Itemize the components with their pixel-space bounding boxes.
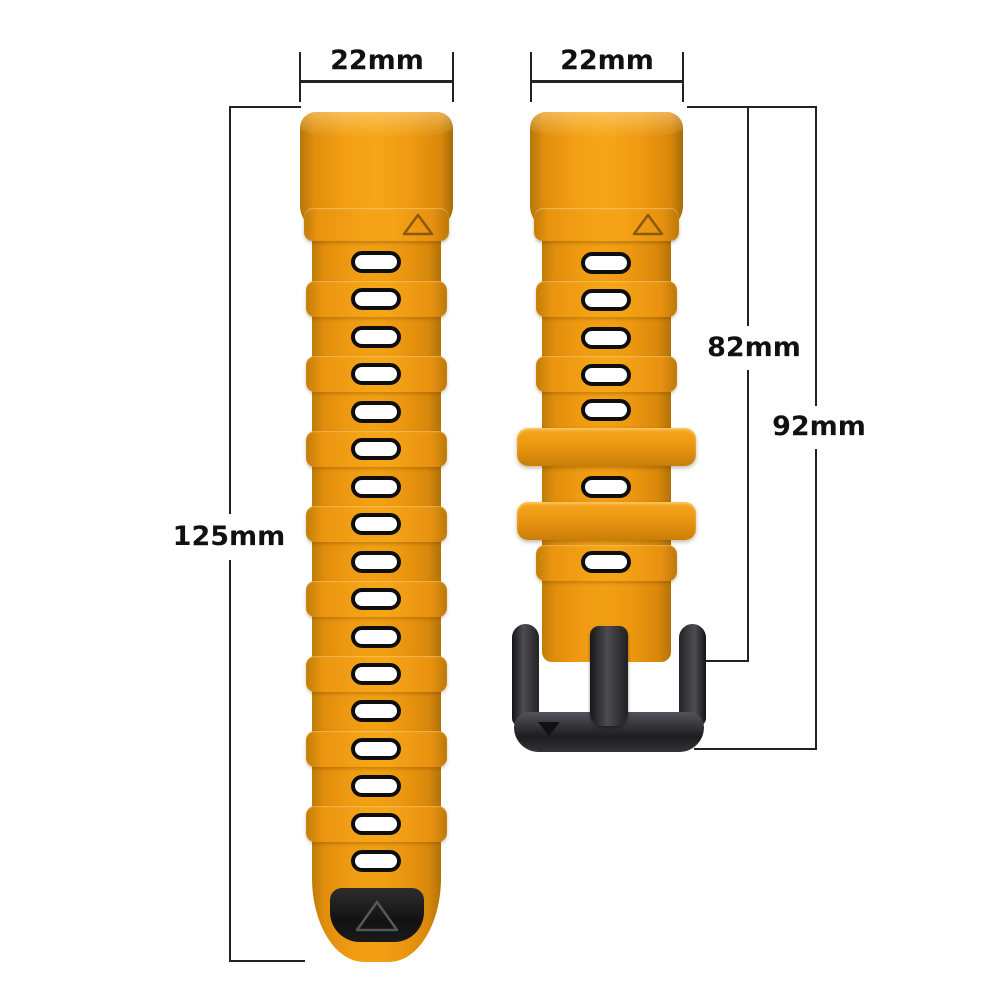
strap-hole bbox=[581, 399, 631, 421]
keeper-loop bbox=[517, 428, 696, 466]
strap-hole bbox=[351, 551, 401, 573]
dim-left-width-bar bbox=[299, 80, 454, 83]
strap-hole bbox=[581, 364, 631, 386]
dim-92-foot bbox=[694, 748, 817, 750]
tip-triangle-icon bbox=[354, 899, 400, 933]
alignment-triangle-icon bbox=[631, 212, 665, 237]
right-band bbox=[530, 112, 683, 662]
dim-length-line-lower bbox=[229, 560, 231, 962]
strap-hole bbox=[351, 663, 401, 685]
strap-hole bbox=[351, 813, 401, 835]
strap-hole bbox=[581, 551, 631, 573]
left-band bbox=[300, 112, 453, 962]
dim-length-arm-bottom bbox=[229, 960, 305, 962]
strap-hole bbox=[351, 738, 401, 760]
strap-hole bbox=[351, 401, 401, 423]
strap-hole bbox=[351, 363, 401, 385]
strap-hole bbox=[351, 700, 401, 722]
strap-hole bbox=[581, 289, 631, 311]
buckle-arm-right bbox=[679, 624, 706, 726]
dim-length-arm-top bbox=[229, 106, 301, 108]
right-band-total-length-label: 92mm bbox=[747, 412, 891, 442]
strap-hole bbox=[351, 476, 401, 498]
strap-hole bbox=[351, 588, 401, 610]
keeper-loop bbox=[517, 502, 696, 540]
strap-hole bbox=[351, 513, 401, 535]
dim-82-foot bbox=[701, 660, 749, 662]
strap-hole bbox=[581, 476, 631, 498]
dim-92-arm-top bbox=[687, 106, 817, 108]
left-band-width-label: 22mm bbox=[301, 46, 453, 76]
strap-hole bbox=[351, 850, 401, 872]
strap-hole bbox=[351, 251, 401, 273]
strap-hole bbox=[351, 438, 401, 460]
buckle-triangle-icon bbox=[536, 720, 562, 738]
alignment-triangle-icon bbox=[401, 212, 435, 237]
strap-hole bbox=[351, 626, 401, 648]
dim-82-line-upper bbox=[747, 106, 749, 326]
buckle-tongue bbox=[590, 626, 628, 726]
left-band-length-label: 125mm bbox=[157, 522, 301, 552]
strap-hole bbox=[351, 288, 401, 310]
dim-92-line-lower bbox=[815, 449, 817, 750]
dim-length-line-upper bbox=[229, 106, 231, 514]
strap-hole bbox=[351, 326, 401, 348]
buckle-arm-left bbox=[512, 624, 539, 726]
right-band-width-label: 22mm bbox=[531, 46, 683, 76]
dim-right-width-bar bbox=[530, 80, 684, 83]
buckle bbox=[512, 622, 706, 756]
left-band-tip-insert bbox=[330, 888, 424, 942]
left-band-ridge bbox=[304, 208, 449, 241]
strap-hole bbox=[351, 775, 401, 797]
strap-hole bbox=[581, 252, 631, 274]
right-band-length-label: 82mm bbox=[682, 333, 826, 363]
strap-hole bbox=[581, 327, 631, 349]
right-band-ridge bbox=[534, 208, 679, 241]
diagram-canvas: 22mm 22mm 125mm 82mm 92mm bbox=[0, 0, 1000, 1000]
